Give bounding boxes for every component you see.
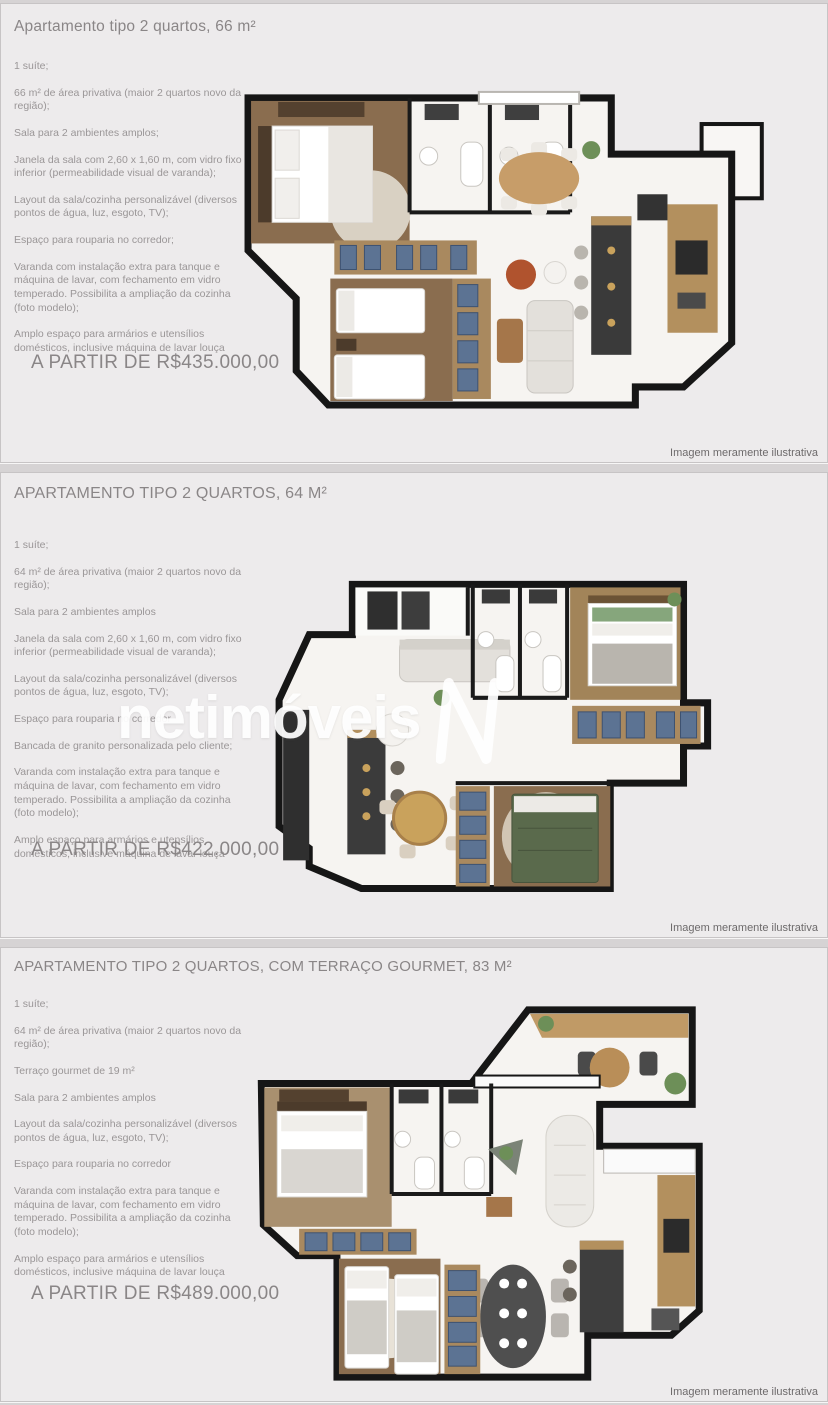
feature-bullet: Varanda com instalação extra para tanque…: [14, 1185, 246, 1240]
feature-bullet: Varanda com instalação extra para tanque…: [14, 766, 246, 821]
floor-plan-83m2: [247, 980, 824, 1398]
master-suite: [264, 1087, 391, 1226]
feature-bullet: 64 m² de área privativa (maior 2 quartos…: [14, 1025, 246, 1052]
floor-plan-66m2: [238, 88, 820, 433]
feature-bullet: 66 m² de área privativa (maior 2 quartos…: [14, 87, 246, 114]
flyer-page: Apartamento tipo 2 quartos, 66 m² 1 suít…: [0, 0, 828, 1405]
page-title: APARTAMENTO TIPO 2 QUARTOS, COM TERRAÇO …: [14, 958, 774, 975]
feature-bullet: Bancada de granito personalizada pelo cl…: [14, 740, 246, 754]
feature-bullet: Janela da sala com 2,60 x 1,60 m, com vi…: [14, 633, 246, 660]
listing-card-83m2: APARTAMENTO TIPO 2 QUARTOS, COM TERRAÇO …: [0, 947, 828, 1402]
floor-plan-83m2-render: [247, 980, 824, 1398]
feature-bullet: Espaço para rouparia no corredor: [14, 713, 246, 727]
feature-bullet: Janela da sala com 2,60 x 1,60 m, com vi…: [14, 154, 246, 181]
feature-list: 1 suíte; 64 m² de área privativa (maior …: [14, 539, 246, 874]
master-suite: [251, 101, 411, 251]
feature-bullet: Espaço para rouparia no corredor: [14, 1158, 246, 1172]
floor-plan-64m2: [249, 577, 821, 929]
feature-list: 1 suíte; 66 m² de área privativa (maior …: [14, 60, 246, 369]
feature-bullet: Sala para 2 ambientes amplos: [14, 606, 246, 620]
feature-bullet: Sala para 2 ambientes amplos: [14, 1092, 246, 1106]
feature-bullet: Layout da sala/cozinha personalizável (d…: [14, 673, 246, 700]
feature-bullet: 1 suíte;: [14, 539, 246, 553]
page-title: Apartamento tipo 2 quartos, 66 m²: [14, 18, 774, 36]
listing-card-64m2: APARTAMENTO TIPO 2 QUARTOS, 64 M² 1 suít…: [0, 472, 828, 938]
feature-bullet: 1 suíte;: [14, 60, 246, 74]
second-bedroom: [494, 786, 610, 886]
feature-bullet: 64 m² de área privativa (maior 2 quartos…: [14, 566, 246, 593]
price-label: A PARTIR DE R$489.000,00: [31, 1283, 279, 1305]
feature-bullet: Layout da sala/cozinha personalizável (d…: [14, 194, 246, 221]
feature-bullet: Varanda com instalação extra para tanque…: [14, 261, 246, 316]
floor-plan-64m2-render: [249, 577, 821, 929]
feature-list: 1 suíte; 64 m² de área privativa (maior …: [14, 998, 246, 1293]
floor-plan-66m2-render: [238, 88, 820, 433]
second-bedroom: [330, 279, 452, 401]
price-label: A PARTIR DE R$422.000,00: [31, 839, 279, 861]
disclaimer-text: Imagem meramente ilustrativa: [670, 922, 818, 934]
second-bedroom: [339, 1259, 441, 1374]
feature-bullet: Espaço para rouparia no corredor;: [14, 234, 246, 248]
feature-bullet: Amplo espaço para armários e utensílios …: [14, 1253, 246, 1280]
feature-bullet: Sala para 2 ambientes amplos;: [14, 127, 246, 141]
feature-bullet: Layout da sala/cozinha personalizável (d…: [14, 1118, 246, 1145]
disclaimer-text: Imagem meramente ilustrativa: [670, 1386, 818, 1398]
listing-card-66m2: Apartamento tipo 2 quartos, 66 m² 1 suít…: [0, 3, 828, 463]
laundry-balcony: [355, 587, 467, 635]
feature-bullet: Terraço gourmet de 19 m²: [14, 1065, 246, 1079]
feature-bullet: 1 suíte;: [14, 998, 246, 1012]
page-title: APARTAMENTO TIPO 2 QUARTOS, 64 M²: [14, 485, 774, 503]
disclaimer-text: Imagem meramente ilustrativa: [670, 447, 818, 459]
